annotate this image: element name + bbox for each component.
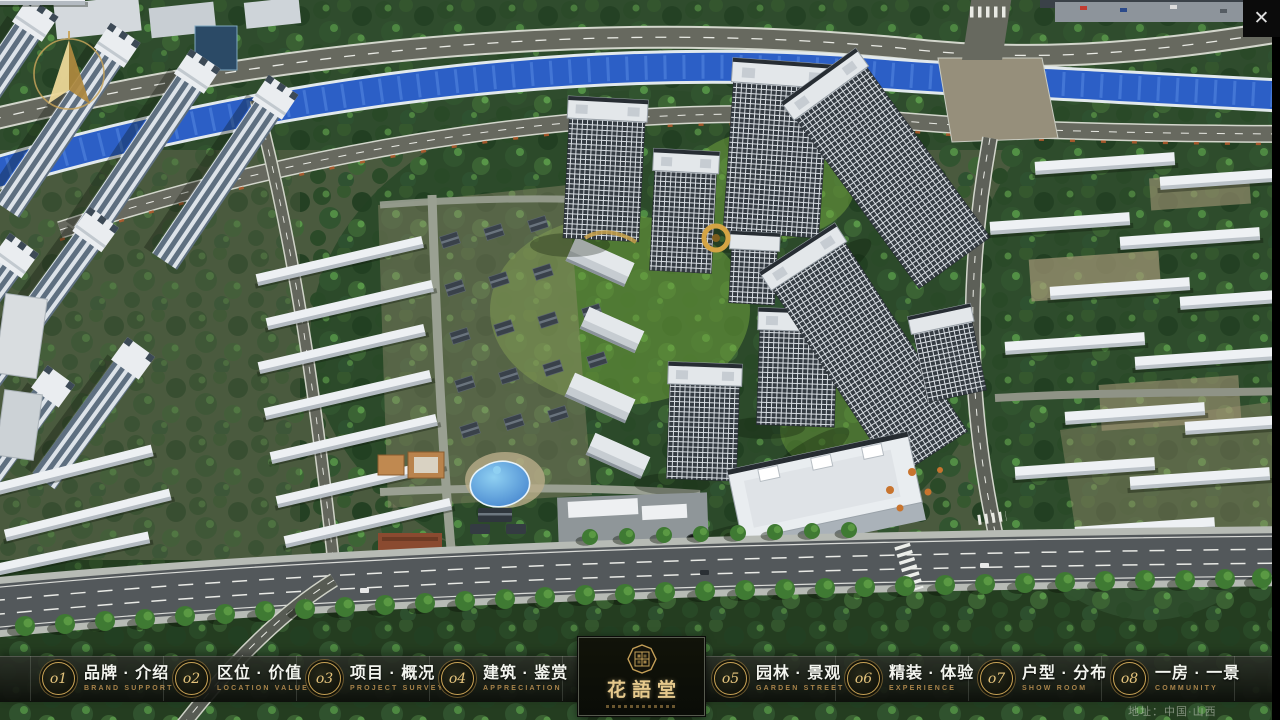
logo-panel[interactable]: 花語堂 xyxy=(578,637,705,716)
nav-item-project[interactable]: o3 项目 · 概况 PROJECT SURVEY xyxy=(296,656,429,701)
nav-item-garden-caption: GARDEN STREET xyxy=(756,685,845,692)
masterplan-viewport[interactable]: ✕ o1 品牌 · 介绍 BRAND SUPPORT o2 区位 · 价值 LO… xyxy=(0,0,1280,720)
nav-item-community-label: 一房 · 一景 xyxy=(1155,666,1240,682)
close-icon: ✕ xyxy=(1243,0,1280,37)
nav-item-location[interactable]: o2 区位 · 价值 LOCATION VALUE xyxy=(163,656,296,701)
pool-garden xyxy=(465,452,545,508)
project-name-caption xyxy=(606,705,678,708)
nav-item-floorplan-caption: SHOW ROOM xyxy=(1022,685,1107,692)
nav-item-floorplan-number: o7 xyxy=(988,671,1005,687)
nav-item-project-badge: o3 xyxy=(308,662,341,695)
nav-item-location-badge: o2 xyxy=(175,662,208,695)
compass-icon xyxy=(26,28,112,114)
masterplan-render xyxy=(0,0,1280,720)
nav-item-community-caption: COMMUNITY xyxy=(1155,685,1240,692)
nav-item-garden[interactable]: o5 园林 · 景观 GARDEN STREET xyxy=(702,656,835,701)
nav-item-interior-label: 精装 · 体验 xyxy=(889,666,974,682)
nav-item-community-badge: o8 xyxy=(1113,662,1146,695)
close-button[interactable]: ✕ xyxy=(1243,0,1280,37)
nav-item-brand-label: 品牌 · 介绍 xyxy=(84,666,174,682)
logo-seal-icon xyxy=(627,644,657,674)
nav-item-interior-number: o6 xyxy=(855,671,872,687)
bottom-nav-left: o1 品牌 · 介绍 BRAND SUPPORT o2 区位 · 价值 LOCA… xyxy=(30,656,563,701)
nav-item-brand-caption: BRAND SUPPORT xyxy=(84,685,174,692)
nav-item-floorplan-badge: o7 xyxy=(980,662,1013,695)
project-name: 花語堂 xyxy=(601,675,682,702)
nav-item-project-number: o3 xyxy=(316,671,333,687)
right-edge-strip xyxy=(1272,0,1280,720)
nav-item-architecture-badge: o4 xyxy=(441,662,474,695)
nav-item-garden-number: o5 xyxy=(722,671,739,687)
nav-item-community[interactable]: o8 一房 · 一景 COMMUNITY xyxy=(1101,656,1234,701)
nav-item-interior[interactable]: o6 精装 · 体验 EXPERIENCE xyxy=(835,656,968,701)
nav-item-location-number: o2 xyxy=(183,671,200,687)
nav-item-architecture-caption: APPRECIATION xyxy=(483,685,568,692)
nav-item-garden-badge: o5 xyxy=(714,662,747,695)
project-address: 地址：中国·山西 xyxy=(1128,703,1217,719)
nav-item-floorplan[interactable]: o7 户型 · 分布 SHOW ROOM xyxy=(968,656,1101,701)
bottom-nav-right: o5 园林 · 景观 GARDEN STREET o6 精装 · 体验 EXPE… xyxy=(702,656,1235,701)
nav-item-interior-badge: o6 xyxy=(847,662,880,695)
nav-item-architecture[interactable]: o4 建筑 · 鉴赏 APPRECIATION xyxy=(429,656,562,701)
nav-item-brand[interactable]: o1 品牌 · 介绍 BRAND SUPPORT xyxy=(30,656,163,701)
nav-item-floorplan-label: 户型 · 分布 xyxy=(1022,666,1107,682)
nav-item-architecture-label: 建筑 · 鉴赏 xyxy=(483,666,568,682)
nav-item-garden-label: 园林 · 景观 xyxy=(756,666,845,682)
nav-item-brand-number: o1 xyxy=(50,671,67,687)
nav-item-community-number: o8 xyxy=(1121,671,1138,687)
nav-item-interior-caption: EXPERIENCE xyxy=(889,685,974,692)
nav-item-brand-badge: o1 xyxy=(42,662,75,695)
nav-item-architecture-number: o4 xyxy=(449,671,466,687)
